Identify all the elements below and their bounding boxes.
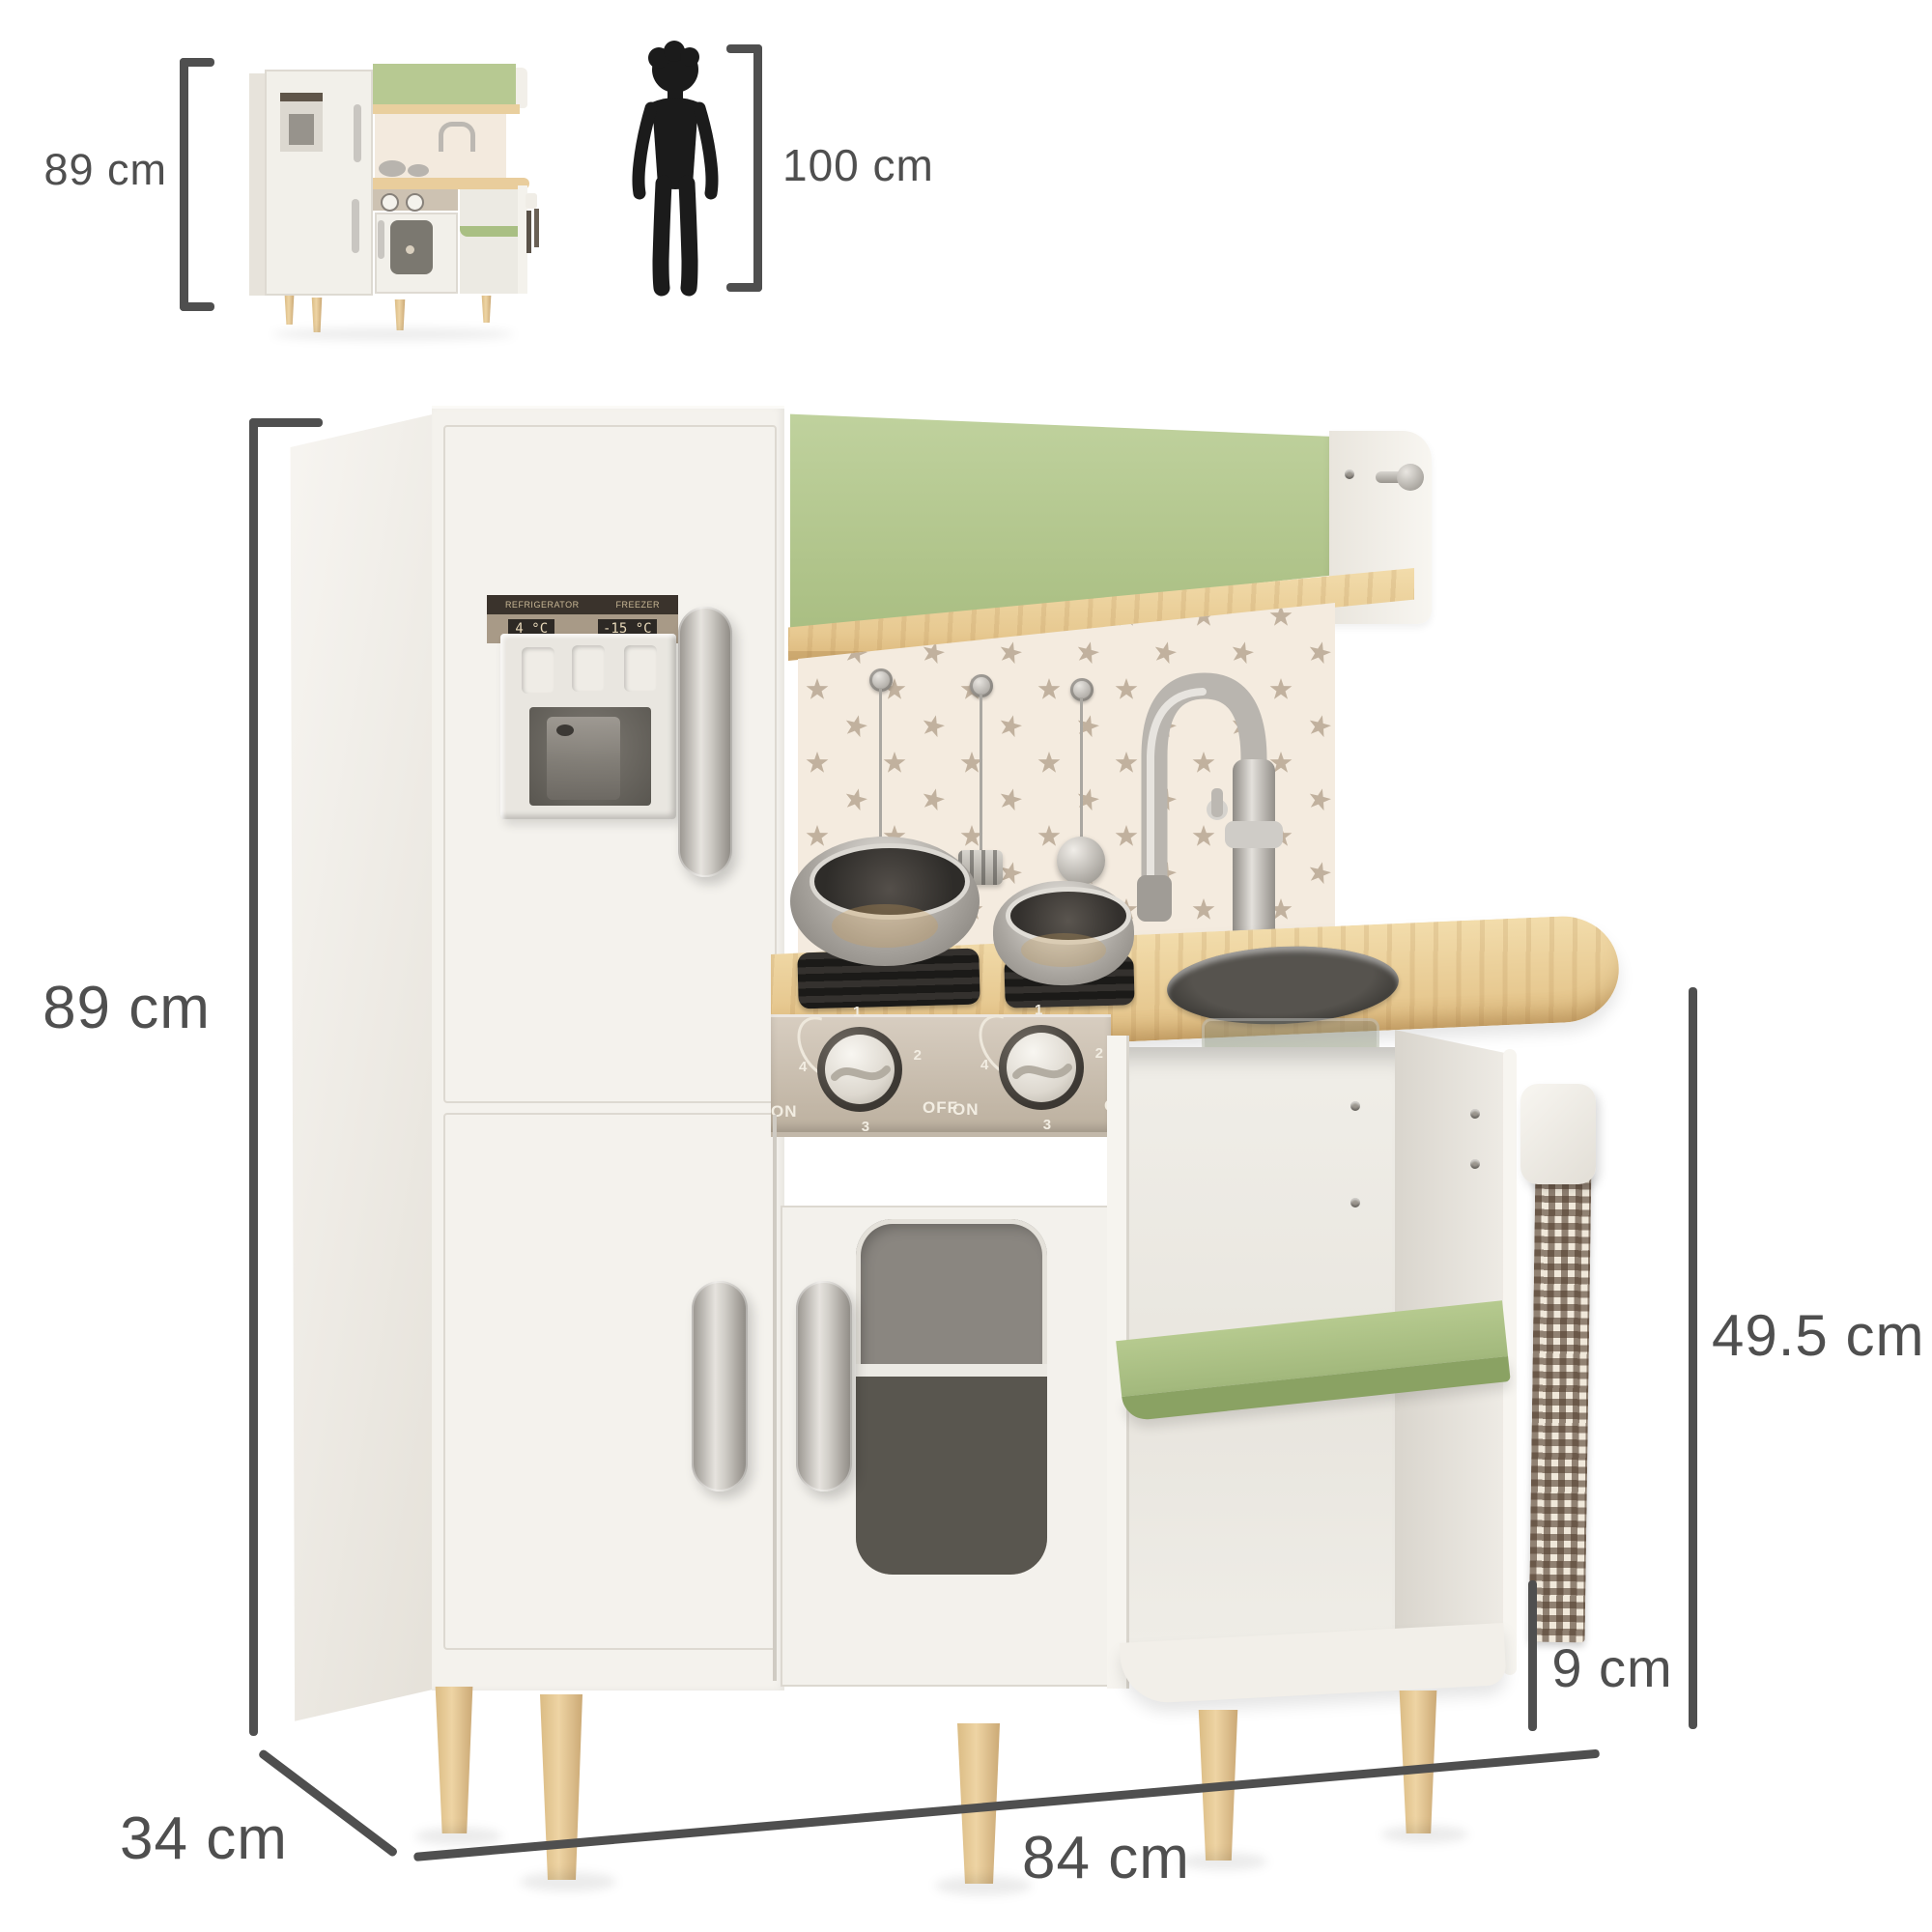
knob-number-3: 3	[1043, 1117, 1051, 1133]
hutch-screw	[1345, 469, 1354, 479]
oven-window	[856, 1219, 1047, 1575]
fridge-side-panel	[286, 408, 433, 1729]
oven-handle	[796, 1281, 852, 1492]
dispenser-button	[522, 647, 554, 694]
play-kitchen: REFRIGERATOR FREEZER 4 °C -15 °C	[0, 0, 1932, 1932]
door-gap	[773, 1115, 777, 1681]
knob-number-1: 1	[1035, 1002, 1042, 1018]
leg-shadow	[935, 1876, 1032, 1895]
kitchen-leg	[537, 1694, 585, 1880]
stove-knob-right: 1 2 3 4 ON OFF	[999, 1025, 1084, 1110]
kitchen-leg	[1196, 1710, 1240, 1861]
fridge-display-titles: REFRIGERATOR FREEZER	[487, 595, 678, 614]
kitchen-leg	[1397, 1690, 1439, 1833]
dispenser-cup-hole	[556, 724, 574, 736]
pot-reflection	[1021, 933, 1106, 967]
oven-shelf	[856, 1364, 1047, 1377]
divider-screw	[1350, 1101, 1360, 1111]
wall-screw	[1470, 1109, 1480, 1119]
leg-shadow	[415, 1828, 502, 1845]
knob-on-label: ON	[952, 1100, 980, 1120]
divider-screw	[1350, 1198, 1360, 1207]
stove-knob-left: 1 2 3 4 ON OFF	[817, 1027, 902, 1112]
toy-pot	[993, 881, 1134, 985]
towel-holder-bracket	[1520, 1084, 1596, 1184]
fridge-upper-handle	[678, 607, 732, 877]
dispenser-opening	[529, 707, 651, 806]
knob-ridge	[825, 1035, 895, 1104]
oven-interior-lower	[856, 1377, 1047, 1575]
hanging-ladle	[1057, 837, 1105, 885]
ice-dispenser	[500, 634, 676, 819]
kitchen-leg	[433, 1687, 475, 1833]
utensil-wire	[980, 694, 982, 856]
knob-number-2: 2	[914, 1047, 922, 1064]
knob-number-4: 4	[799, 1059, 807, 1075]
knob-number-2: 2	[1095, 1045, 1103, 1062]
leg-shadow	[1180, 1853, 1267, 1870]
freezer-label: FREEZER	[616, 600, 661, 610]
kitchen-leg	[954, 1723, 1003, 1884]
wall-screw	[1470, 1159, 1480, 1169]
utensil-wire	[1080, 697, 1083, 844]
knob-number-4: 4	[980, 1057, 988, 1073]
utensil-wire	[879, 688, 882, 844]
knob-number-3: 3	[862, 1119, 869, 1135]
pan-reflection	[832, 904, 938, 949]
dispenser-button	[624, 645, 657, 692]
knob-number-1: 1	[853, 1004, 861, 1020]
leg-shadow	[520, 1872, 616, 1891]
fridge-lower-handle	[692, 1281, 748, 1492]
gingham-towel	[1529, 1169, 1592, 1643]
hanger-peg-ball	[1397, 464, 1424, 491]
dispenser-button	[572, 645, 605, 692]
knob-ridge	[1007, 1033, 1076, 1102]
refrigerator-label: REFRIGERATOR	[505, 600, 580, 610]
leg-shadow	[1381, 1826, 1468, 1843]
product-dimension-image: { "scale_reference": { "thumbnail_label"…	[0, 0, 1932, 1932]
toy-pan	[790, 837, 980, 966]
